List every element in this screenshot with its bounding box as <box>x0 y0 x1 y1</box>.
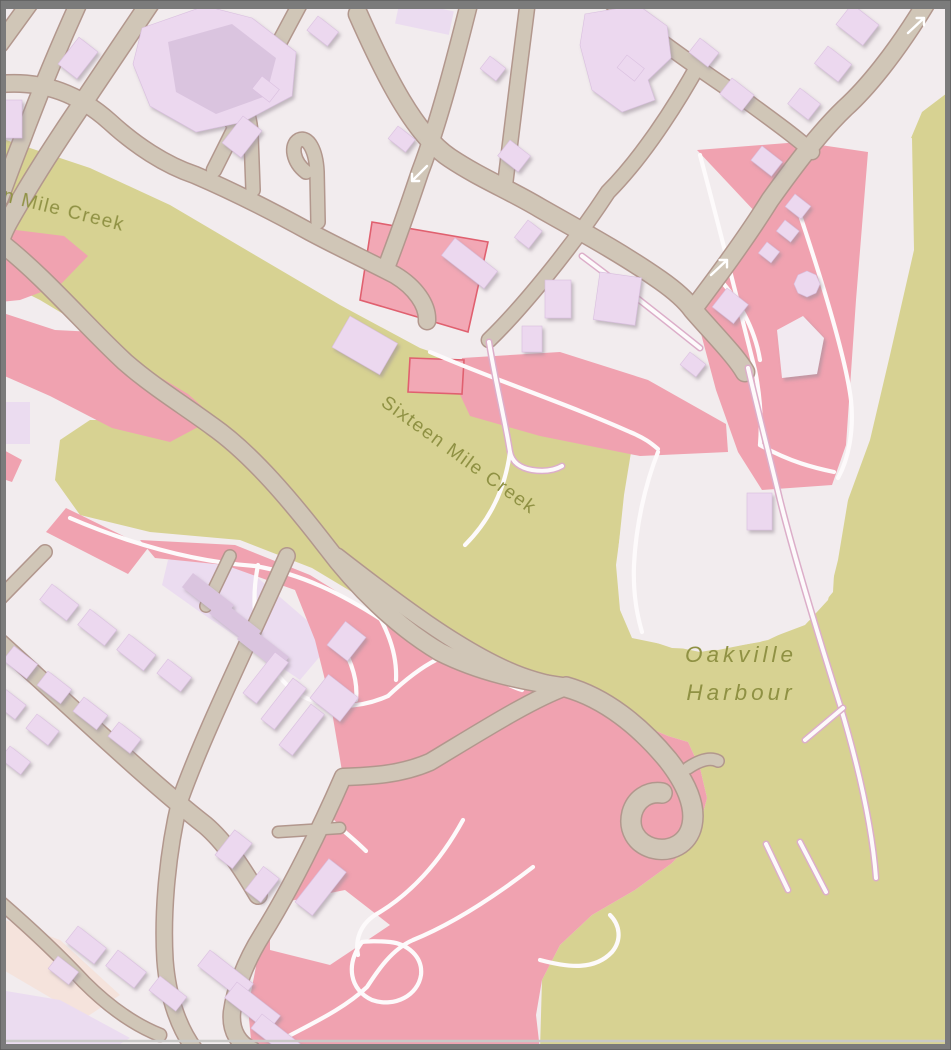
harbour-label-line2: Harbour <box>686 680 795 705</box>
map-window: Sixteen Mile Creek Sixteen Mile Creek Oa… <box>0 0 951 1050</box>
harbour-label-line1: Oakville <box>685 642 797 667</box>
map-canvas[interactable]: Sixteen Mile Creek Sixteen Mile Creek Oa… <box>0 0 951 1050</box>
